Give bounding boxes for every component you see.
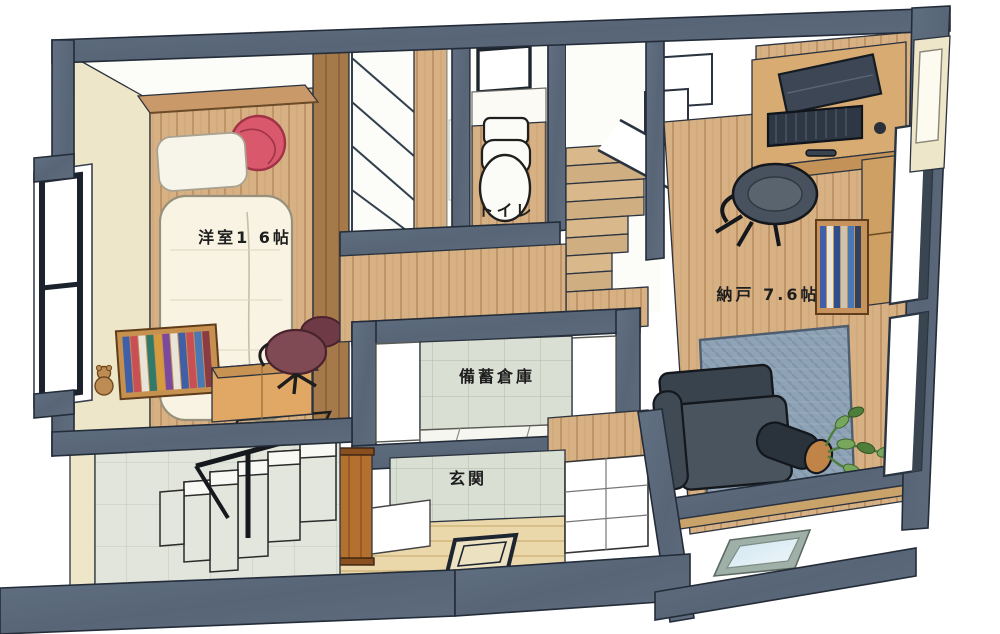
room-storage: 納戸 7.6帖	[651, 32, 912, 534]
desk-handle	[806, 150, 836, 156]
bookshelf	[116, 324, 220, 399]
toilet-window	[478, 46, 530, 92]
stair-wall-pillar	[646, 24, 664, 260]
floor-plan-illustration: 洋室1 6帖 トイレ	[0, 0, 1000, 634]
desk-side-wall-window	[910, 36, 950, 172]
toilet-left-wall	[452, 35, 470, 238]
entrance-step	[372, 500, 430, 554]
storage-cabinet-left	[376, 342, 420, 442]
toilet-right-wall	[548, 27, 566, 232]
entrance-label: 玄関	[449, 469, 487, 488]
bedroom-closet	[349, 34, 462, 242]
floor-plan-canvas: 洋室1 6帖 トイレ	[0, 0, 1000, 634]
books	[122, 331, 213, 393]
teddy-bear	[95, 365, 113, 395]
stairwell-left-wall-face	[70, 448, 95, 600]
storage-room-window-lower	[884, 312, 928, 476]
room-toilet: トイレ	[452, 27, 566, 238]
bedroom-label: 洋室1 6帖	[198, 228, 292, 247]
entrance-partition-wall	[336, 448, 374, 565]
book-rack	[816, 220, 868, 314]
toilet-label: トイレ	[477, 201, 534, 220]
storage-room-label: 納戸 7.6帖	[717, 285, 820, 304]
shoe-cabinet	[565, 455, 648, 553]
bottom-slab-left	[0, 570, 455, 634]
room-bedroom: 洋室1 6帖	[70, 38, 350, 448]
storage-left-wall	[352, 321, 376, 462]
document-tray	[768, 106, 862, 146]
closet-floor-wood	[414, 38, 447, 238]
bedroom-window	[34, 154, 92, 418]
stockpile-storage-label: 備蓄倉庫	[459, 367, 535, 386]
pillow	[156, 132, 248, 192]
desk-knob	[874, 122, 886, 134]
